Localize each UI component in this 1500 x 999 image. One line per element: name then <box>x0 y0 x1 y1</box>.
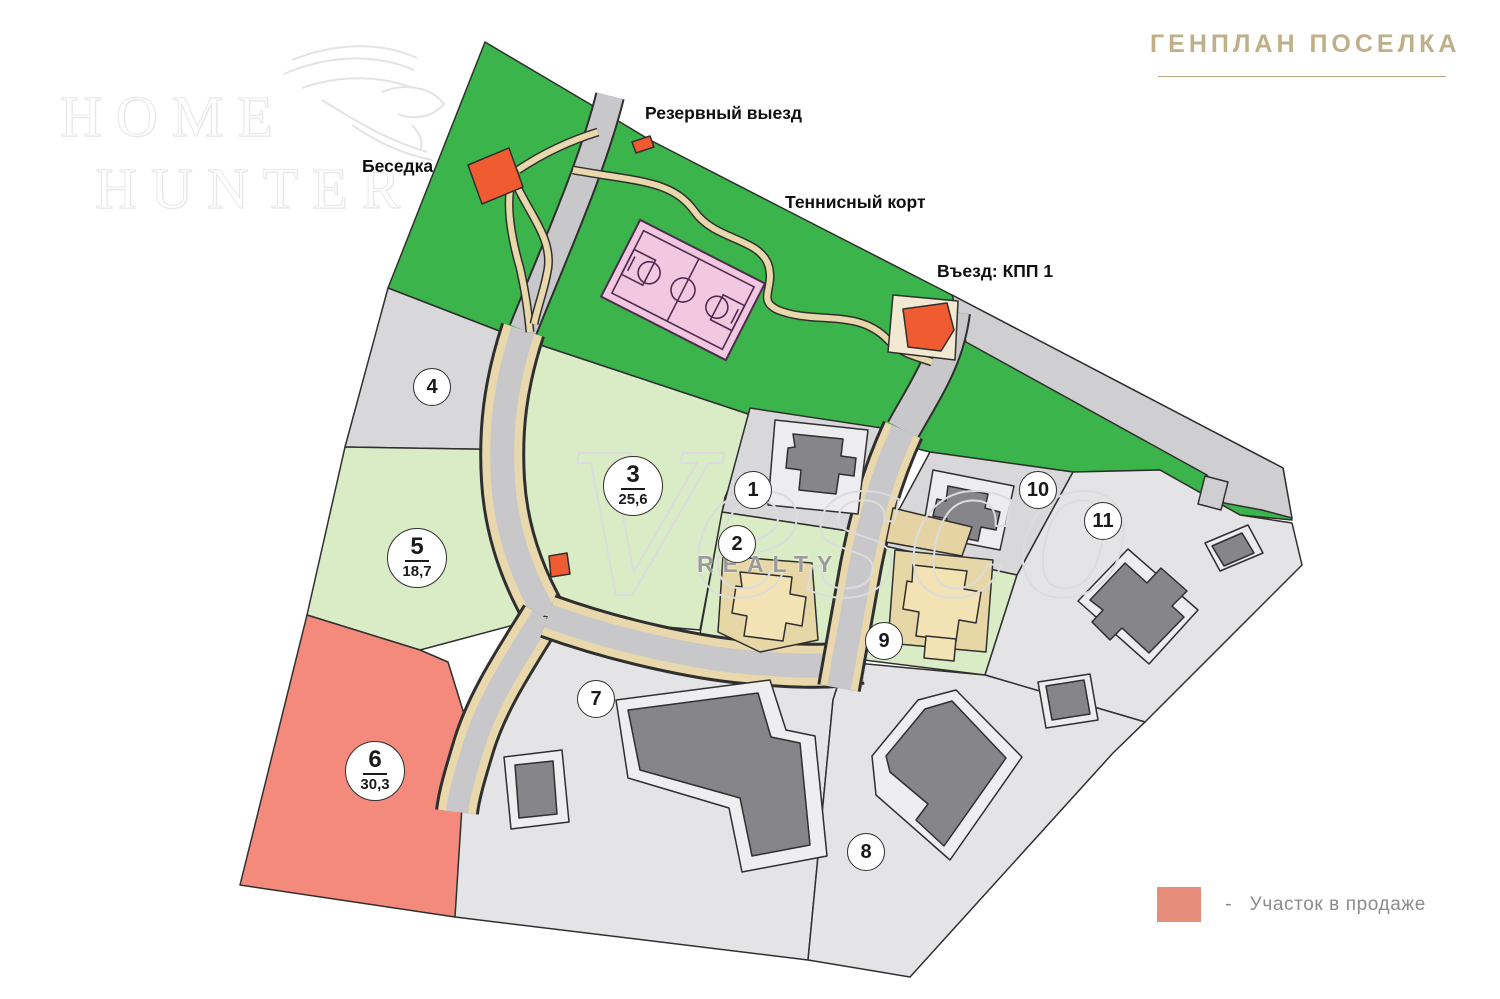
plot-5-marker[interactable]: 5 18,7 <box>387 528 447 588</box>
plot-number: 5 <box>405 534 428 562</box>
plot-4-marker[interactable]: 4 <box>413 368 451 406</box>
plot-8-marker[interactable]: 8 <box>847 833 885 871</box>
house-small-plot-7 <box>515 761 557 818</box>
page-title: ГЕНПЛАН ПОСЕЛКА <box>1150 30 1450 59</box>
plot-number: 10 <box>1027 479 1049 502</box>
label-entrance-checkpoint: Въезд: КПП 1 <box>937 261 1053 282</box>
plot-1-marker[interactable]: 1 <box>734 471 772 509</box>
genplan-page: Vesco REALTY HOME HUNTER ГЕНПЛАН ПОСЕЛКА… <box>0 0 1500 999</box>
label-reserve-exit: Резервный выезд <box>645 103 802 124</box>
plot-number: 11 <box>1092 510 1113 533</box>
legend-dash: - <box>1225 893 1232 916</box>
plot-number: 7 <box>590 688 601 711</box>
label-tennis-court: Теннисный корт <box>785 192 926 213</box>
plot-number: 6 <box>363 747 386 775</box>
plot-number: 9 <box>878 630 889 653</box>
plot-number: 8 <box>860 841 871 864</box>
legend-label: Участок в продаже <box>1250 894 1426 916</box>
plot-number: 1 <box>747 479 758 502</box>
plot-number: 2 <box>731 533 742 556</box>
for-sale-swatch <box>1157 887 1201 922</box>
plot-7-marker[interactable]: 7 <box>577 680 615 718</box>
watermark-sub: REALTY <box>697 551 841 578</box>
watermark-brand: Vesco <box>567 414 1132 641</box>
plot-3-marker[interactable]: 3 25,6 <box>603 456 663 516</box>
plot-area: 25,6 <box>618 491 647 510</box>
house-small-south <box>1046 680 1090 720</box>
plot-6-marker[interactable]: 6 30,3 <box>345 741 405 801</box>
plot-9-marker[interactable]: 9 <box>865 622 903 660</box>
plot-area: 18,7 <box>402 563 431 582</box>
title-underline <box>1158 76 1446 77</box>
logo-home: HOME <box>60 88 287 146</box>
legend: - Участок в продаже <box>1157 887 1426 922</box>
plot-number: 4 <box>426 376 437 399</box>
plot-11-marker[interactable]: 11 <box>1084 502 1122 540</box>
plot-2-marker[interactable]: 2 <box>718 525 756 563</box>
plot-10-marker[interactable]: 10 <box>1019 471 1057 509</box>
plot-area: 30,3 <box>360 776 389 795</box>
plot-number: 3 <box>621 462 644 490</box>
label-gazebo: Беседка <box>362 156 433 177</box>
